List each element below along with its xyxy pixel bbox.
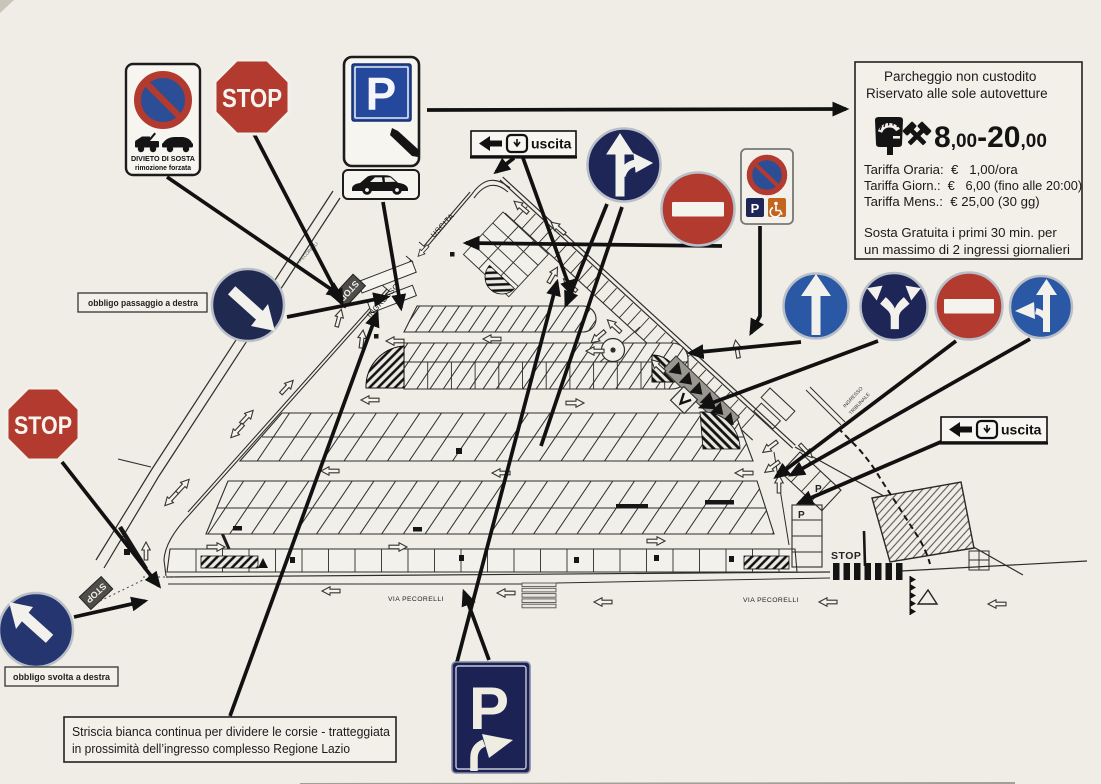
svg-text:Tariffa Giorn.: € 6,00 (fin: Tariffa Giorn.: € 6,00 (fino alle 20:00) <box>864 178 1082 193</box>
svg-text:Tariffa Oraria: € 1,00/ora: Tariffa Oraria: € 1,00/ora <box>864 162 1018 177</box>
svg-text:P: P <box>798 510 805 521</box>
svg-text:obbligo passaggio a destra: obbligo passaggio a destra <box>88 298 199 308</box>
svg-text:Parcheggio non custodito: Parcheggio non custodito <box>884 69 1036 84</box>
svg-text:in prossimità dell’ingresso co: in prossimità dell’ingresso complesso Re… <box>72 742 350 756</box>
svg-text:Sosta Gratuita i primi 30 min.: Sosta Gratuita i primi 30 min. per <box>864 225 1057 240</box>
svg-text:STOP: STOP <box>831 550 861 562</box>
svg-text:VIA PECORELLI: VIA PECORELLI <box>388 596 444 603</box>
svg-text:P: P <box>751 201 760 216</box>
svg-text:rimozione forzata: rimozione forzata <box>135 165 191 172</box>
svg-text:VIA PECORELLI: VIA PECORELLI <box>743 597 799 604</box>
svg-text:Riservato alle sole autovettur: Riservato alle sole autovetture <box>866 86 1048 101</box>
svg-text:uscita: uscita <box>531 136 572 152</box>
svg-text:uscita: uscita <box>1001 422 1042 438</box>
svg-text:un massimo di 2 ingressi giorn: un massimo di 2 ingressi giornalieri <box>864 242 1070 257</box>
svg-text:P: P <box>469 675 509 742</box>
svg-text:obbligo svolta a destra: obbligo svolta a destra <box>13 672 110 682</box>
svg-text:STOP: STOP <box>222 83 282 113</box>
svg-text:DIVIETO DI SOSTA: DIVIETO DI SOSTA <box>131 154 196 163</box>
svg-text:P: P <box>366 68 397 120</box>
svg-text:STOP: STOP <box>14 412 72 440</box>
svg-text:Tariffa Mens.: € 25,00 (30 gg: Tariffa Mens.: € 25,00 (30 gg) <box>864 194 1040 209</box>
svg-text:Striscia bianca continua per d: Striscia bianca continua per dividere le… <box>72 725 390 739</box>
